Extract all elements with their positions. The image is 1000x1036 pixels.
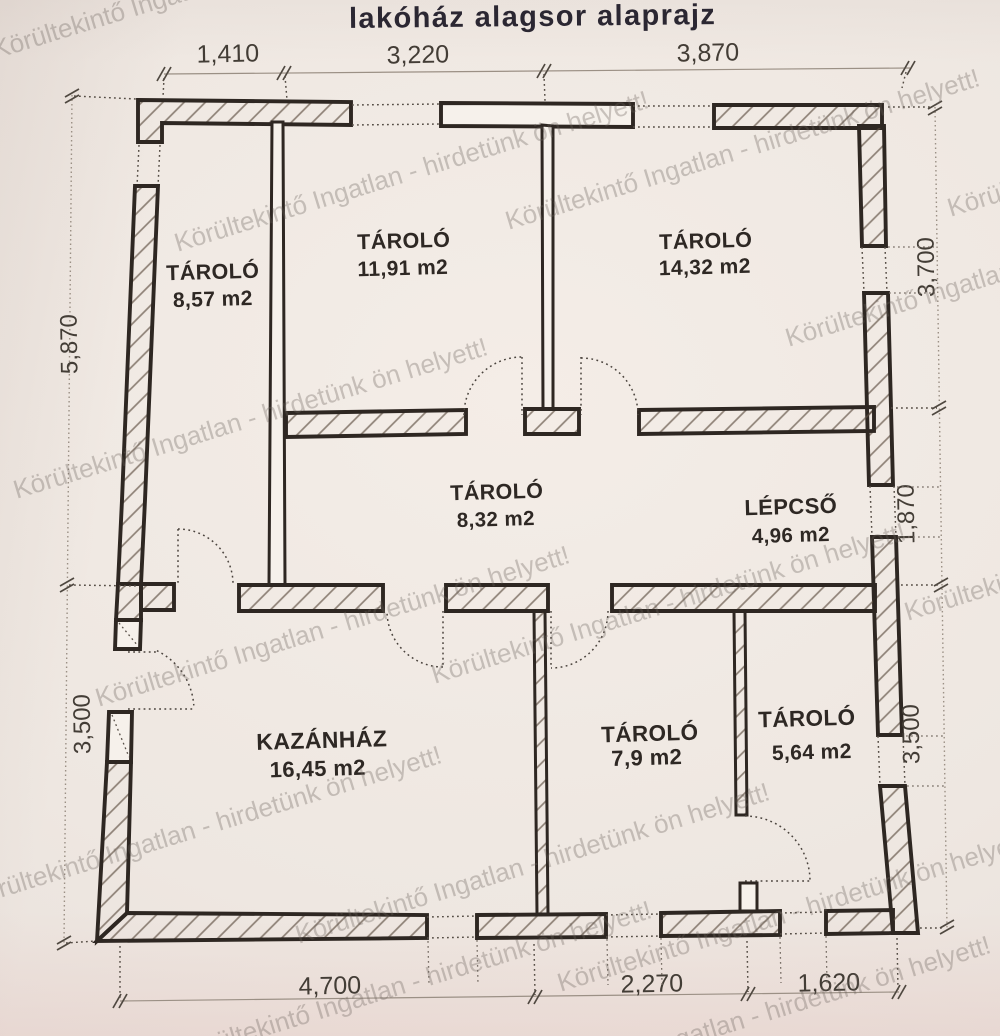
- svg-text:LÉPCSŐ: LÉPCSŐ: [744, 493, 838, 521]
- svg-text:3,870: 3,870: [676, 38, 739, 67]
- svg-text:1,620: 1,620: [797, 968, 860, 997]
- svg-text:2,270: 2,270: [620, 969, 683, 998]
- svg-text:8,32 m2: 8,32 m2: [456, 507, 535, 532]
- svg-text:7,9 m2: 7,9 m2: [611, 744, 683, 771]
- svg-text:TÁROLÓ: TÁROLÓ: [659, 227, 753, 255]
- svg-text:4,96 m2: 4,96 m2: [751, 523, 830, 548]
- svg-text:3,500: 3,500: [897, 704, 925, 765]
- svg-text:14,32 m2: 14,32 m2: [659, 255, 752, 281]
- svg-text:8,57 m2: 8,57 m2: [173, 287, 253, 312]
- svg-text:4,700: 4,700: [298, 971, 361, 1000]
- svg-text:16,45 m2: 16,45 m2: [269, 755, 366, 783]
- svg-text:5,870: 5,870: [55, 314, 83, 375]
- svg-text:TÁROLÓ: TÁROLÓ: [166, 258, 260, 286]
- svg-text:1,410: 1,410: [196, 39, 259, 68]
- svg-text:5,64 m2: 5,64 m2: [772, 740, 852, 765]
- svg-text:1,870: 1,870: [892, 484, 920, 545]
- svg-text:3,220: 3,220: [386, 40, 449, 69]
- svg-text:3,700: 3,700: [912, 237, 940, 298]
- svg-text:TÁROLÓ: TÁROLÓ: [758, 705, 856, 733]
- svg-text:KAZÁNHÁZ: KAZÁNHÁZ: [256, 724, 388, 755]
- svg-text:TÁROLÓ: TÁROLÓ: [450, 478, 544, 506]
- svg-text:TÁROLÓ: TÁROLÓ: [601, 720, 699, 748]
- svg-text:TÁROLÓ: TÁROLÓ: [357, 227, 451, 255]
- svg-text:3,500: 3,500: [68, 694, 96, 755]
- svg-text:11,91 m2: 11,91 m2: [357, 256, 448, 282]
